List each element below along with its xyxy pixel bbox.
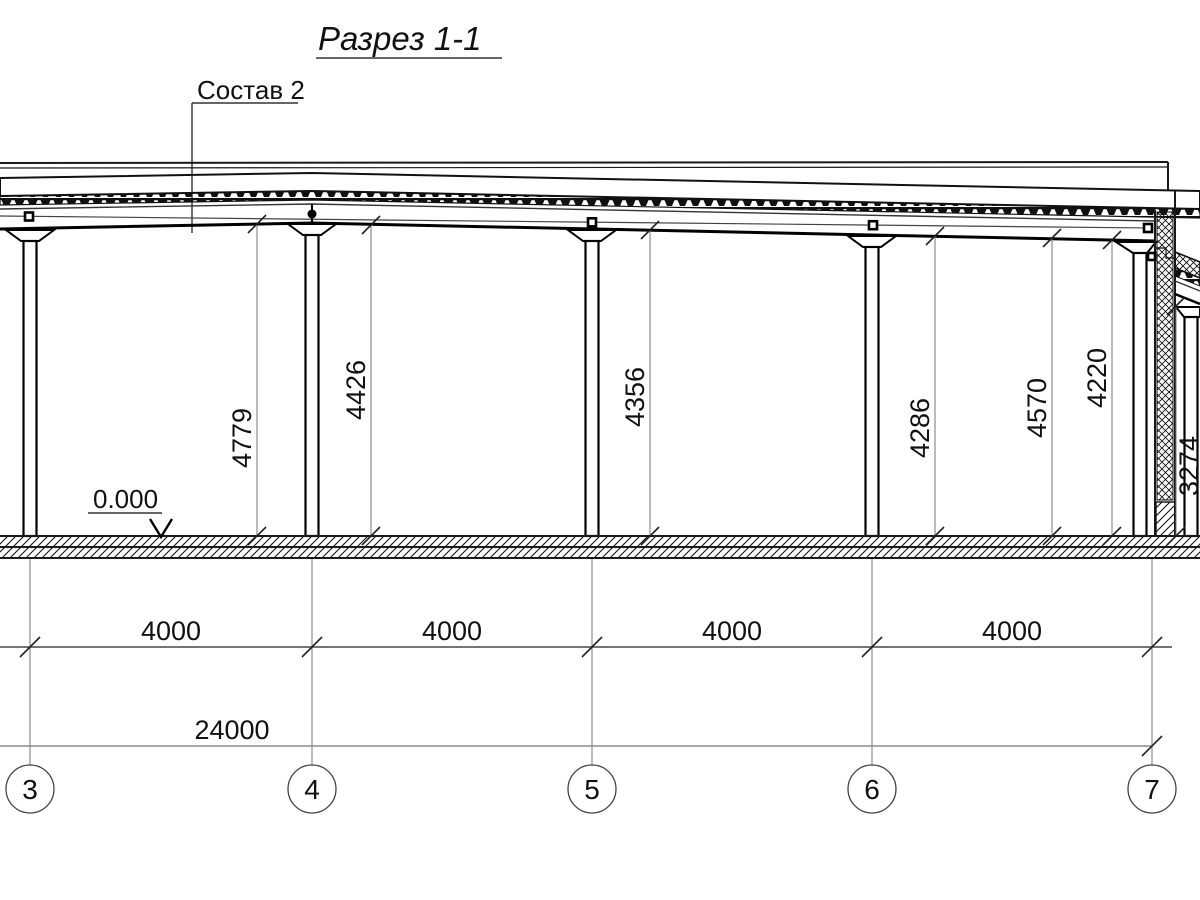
grid-axis-label: 5	[584, 774, 600, 805]
parapet-top-line	[0, 162, 1168, 163]
floor-layer-top	[0, 536, 1200, 547]
drawing-canvas: Разрез 1-1 Состав 2	[0, 0, 1200, 900]
bay-dimension-label: 4000	[141, 616, 201, 646]
tie-node-marker	[588, 218, 596, 226]
tie-node-marker	[25, 213, 33, 221]
grid-axis-label: 3	[22, 774, 38, 805]
column-shaft	[306, 235, 319, 536]
bay-dimension-label: 4000	[702, 616, 762, 646]
column-shaft	[24, 241, 37, 536]
vdim-label: 3274	[1174, 436, 1200, 496]
grid-axis-label: 6	[864, 774, 880, 805]
drawing-title: Разрез 1-1	[318, 20, 482, 57]
paper-background	[0, 0, 1200, 900]
vdim-label: 4220	[1082, 348, 1112, 408]
wall-tie-marker	[1148, 253, 1155, 260]
grid-axis-label: 7	[1144, 774, 1160, 805]
column-shaft	[1134, 253, 1147, 536]
bay-dimension-label: 4000	[982, 616, 1042, 646]
vdim-label: 4570	[1022, 378, 1052, 438]
overall-dimension-label: 24000	[194, 715, 269, 745]
tie-node-marker	[869, 221, 877, 229]
vdim-label: 4779	[227, 408, 257, 468]
section-drawing: Разрез 1-1 Состав 2	[0, 0, 1200, 900]
floor-slab	[0, 536, 1200, 558]
vdim-label: 4356	[620, 367, 650, 427]
ridge-node-dot	[308, 210, 317, 219]
title-block: Разрез 1-1	[316, 20, 502, 58]
callout-label: Состав 2	[197, 75, 305, 105]
grid-axis-label: 4	[304, 774, 320, 805]
bay-dimension-label: 4000	[422, 616, 482, 646]
elevation-value: 0.000	[93, 484, 158, 514]
vdim-label: 4426	[341, 360, 371, 420]
lower-roof-column-shaft	[1185, 317, 1198, 536]
vdim-label: 4286	[905, 398, 935, 458]
column-shaft	[586, 241, 599, 536]
column-shaft	[866, 247, 879, 536]
wall-base-block	[1156, 502, 1175, 536]
floor-layer-bottom	[0, 547, 1200, 558]
tie-node-marker	[1144, 224, 1152, 232]
wall-masonry-hatch	[1157, 212, 1173, 500]
